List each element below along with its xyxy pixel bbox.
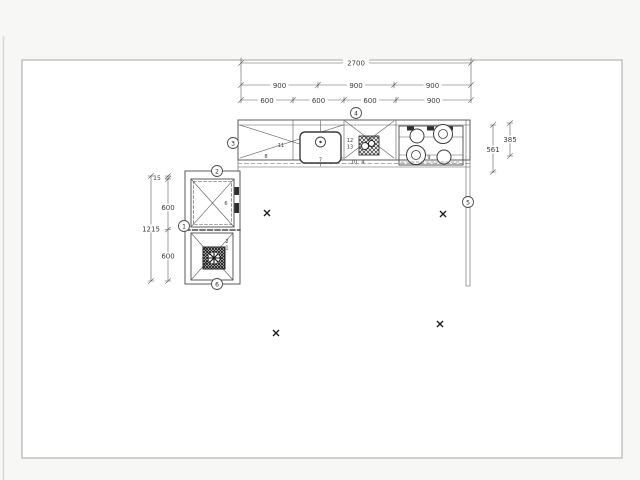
balloon-2: 2 xyxy=(215,168,219,175)
dim-depth-561: 561 xyxy=(486,146,499,154)
dim-900-2: 900 xyxy=(349,82,362,90)
balloon-6: 6 xyxy=(215,281,219,288)
dim-600-1: 600 xyxy=(260,97,273,105)
balloon-5: 5 xyxy=(466,199,470,206)
balloon-4-group: 4 xyxy=(351,108,362,119)
item-label-tall-lower: 1 xyxy=(225,246,228,252)
balloon-4: 4 xyxy=(354,110,358,117)
item-label-cooktop: 9 xyxy=(427,155,430,161)
dim-left-overall: 1215 xyxy=(142,226,160,234)
burner-icon xyxy=(434,125,453,144)
hinge-mark xyxy=(235,187,240,195)
dim-600-3: 600 xyxy=(363,97,376,105)
balloon-3-group: 3 xyxy=(228,138,239,149)
item-label-hob-upper: 12 xyxy=(347,138,353,144)
dim-900-3: 900 xyxy=(426,82,439,90)
floor-plan-svg: 2700 900 900 900 600 600 600 900 1215 15… xyxy=(0,0,640,480)
fan-symbol-icon xyxy=(203,247,225,269)
dim-left-600a: 600 xyxy=(161,204,174,212)
item-label-tall-upper: 2 xyxy=(225,239,228,245)
item-label-hob-front: 4 xyxy=(361,160,364,166)
item-label-counter-base: 8 xyxy=(264,154,267,160)
item-label-counter-cabinet: 11 xyxy=(278,143,284,149)
item-label-hob-lower: 13 xyxy=(347,145,353,151)
item-label-wall-cabinet: 6 xyxy=(224,201,227,207)
drawing-viewer: 2700 900 900 900 600 600 600 900 1215 15… xyxy=(0,0,640,480)
balloon-3: 3 xyxy=(231,140,235,147)
dim-filler-15: 15 xyxy=(153,175,161,182)
balloon-1: 1 xyxy=(182,223,186,230)
dim-overall-width: 2700 xyxy=(347,60,365,68)
dim-left-600b: 600 xyxy=(161,253,174,261)
dim-900-1: 900 xyxy=(273,82,286,90)
burner-icon xyxy=(410,129,424,143)
dim-900-4: 900 xyxy=(427,97,440,105)
dim-depth-385: 385 xyxy=(503,136,516,144)
item-label-sink: 7 xyxy=(319,158,322,164)
item-label-hob-front-left: 10 xyxy=(351,160,357,166)
dim-600-2: 600 xyxy=(312,97,325,105)
hinge-mark xyxy=(235,203,240,213)
burner-icon xyxy=(407,146,426,165)
